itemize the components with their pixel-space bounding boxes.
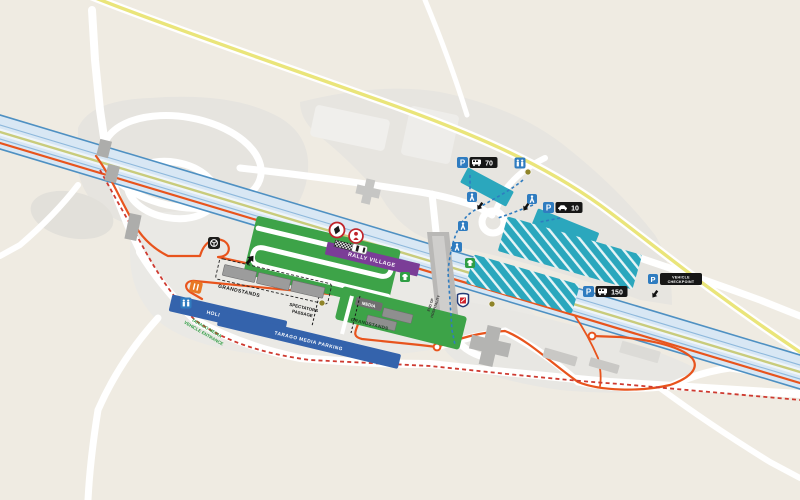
- merchandise-icon[interactable]: [465, 258, 475, 268]
- parking-p-symbol: P: [546, 203, 552, 212]
- parking-p-symbol: P: [650, 275, 655, 284]
- hospitality-shield-icon[interactable]: [458, 294, 469, 307]
- pedestrian-crossing-icon[interactable]: [452, 242, 462, 252]
- vehicle-checkpoint-badge[interactable]: P VEHICLE CHECKPOINT: [648, 273, 702, 285]
- parking-badge-10[interactable]: P 10: [543, 202, 583, 213]
- parking-count: 70: [485, 161, 493, 168]
- parking-count: 150: [611, 290, 623, 297]
- autograph-point-icon[interactable]: [348, 228, 364, 244]
- merchandise-icon[interactable]: [400, 272, 410, 282]
- pedestrian-crossing-icon[interactable]: [458, 221, 468, 231]
- checkpoint-label-2: CHECKPOINT: [668, 280, 695, 284]
- toilets-icon[interactable]: [515, 158, 526, 169]
- route-node: [589, 333, 596, 340]
- checkpoint-label-1: VEHICLE: [672, 275, 690, 279]
- rally-map-canvas[interactable]: MEDIA GRANDSTANDS SPECTATORS PASSAGE HOL…: [0, 0, 800, 500]
- pedestrian-crossing-icon[interactable]: [527, 194, 537, 204]
- parking-count: 10: [571, 206, 579, 213]
- parking-badge-150[interactable]: P 150: [583, 286, 628, 297]
- service-park-steering-icon[interactable]: [208, 237, 220, 249]
- map-svg: MEDIA GRANDSTANDS SPECTATORS PASSAGE HOL…: [0, 0, 800, 500]
- parking-p-symbol: P: [460, 158, 466, 167]
- marshal-point-icon: [489, 301, 495, 307]
- toilets-icon[interactable]: [181, 298, 192, 309]
- pedestrian-crossing-icon[interactable]: [467, 192, 477, 202]
- spectator-point-icon[interactable]: [329, 222, 346, 239]
- parking-badge-70[interactable]: P 70: [457, 157, 498, 168]
- parking-p-symbol: P: [586, 287, 592, 296]
- marshal-point-icon: [525, 169, 531, 175]
- marshal-point-icon: [319, 300, 325, 306]
